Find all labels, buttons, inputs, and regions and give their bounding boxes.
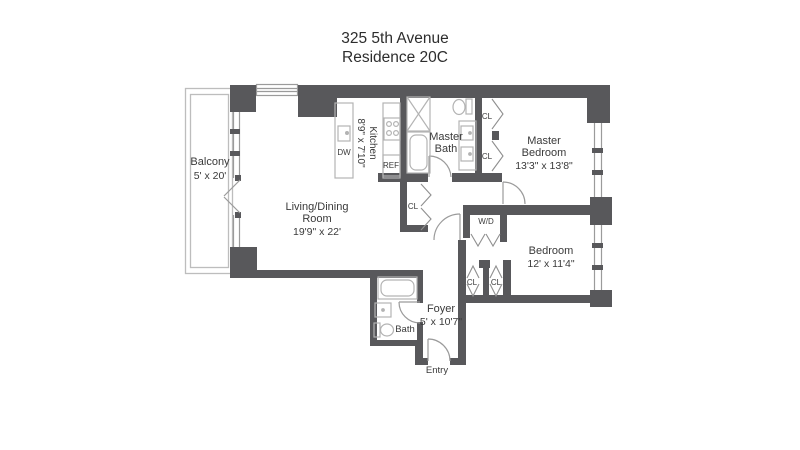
master-bedroom-dims: 13'3" x 13'8" [515,160,573,172]
refrigerator-label: REF [383,161,399,170]
balcony-dims: 5' x 20' [194,170,227,182]
entry-door-arc [428,339,450,361]
closet-2-label: CL [491,278,502,287]
entry-label: Entry [426,365,448,376]
hall-closet-label: CL [408,202,419,211]
master-bedroom-label-line1: Master [527,135,561,147]
master-bathtub-fixture [407,132,430,173]
master-closet-bottom-label: CL [482,152,493,161]
bath-label: Bath [395,324,415,335]
kitchen-label: Kitchen [367,126,378,159]
living-dining-dims: 19'9" x 22' [293,226,341,238]
closet-1-label: CL [467,278,478,287]
sink-fixture [375,303,391,317]
master-bath-label-line1: Master [429,131,463,143]
master-bath-label-line2: Bath [435,143,458,155]
living-dining-label-line1: Living/Dining [286,201,349,213]
laundry-label: W/D [478,217,494,226]
foyer-dims: 5' x 10'7" [420,316,462,328]
master-bedroom-door-arc [503,182,525,204]
balcony-label: Balcony [190,156,230,168]
dishwasher-label: DW [337,148,351,157]
master-closet-bottom-bifold-door [492,141,503,171]
master-bath-door-arc [429,156,451,177]
closet-2-bifold-door-top [490,266,502,278]
laundry-bifold-door-2 [486,234,500,246]
bedroom-dims: 12' x 11'4" [527,258,575,270]
hall-closet-bifold-door-1 [421,184,431,206]
living-dining-label-line2: Room [302,213,331,225]
plan-title-address: 325 5th Avenue [341,30,448,47]
bath-door-arc [399,302,420,323]
vanity-sinks-fixture [459,121,476,170]
kitchen-counter-fixture [335,103,353,178]
bedroom-label: Bedroom [529,245,574,257]
master-bedroom-label-line2: Bedroom [522,147,567,159]
floorplan-drawing: 325 5th Avenue Residence 20C [0,0,800,450]
kitchen-dims: 8'9" x 7'10" [355,118,366,168]
bathtub-fixture [378,277,417,299]
shower-fixture [407,97,430,131]
foyer-label: Foyer [427,303,455,315]
closet-1-bifold-door-top [467,266,479,278]
master-closet-top-bifold-door [492,99,503,129]
master-toilet-fixture [453,99,472,115]
floorplan-page: 325 5th Avenue Residence 20C [0,0,800,450]
laundry-bifold-door-1 [471,234,485,246]
bedroom-door-arc [434,214,460,240]
plan-title-residence: Residence 20C [342,49,448,66]
master-closet-top-label: CL [482,112,493,121]
kitchen-label-group: Kitchen 8'9" x 7'10" [355,118,378,168]
